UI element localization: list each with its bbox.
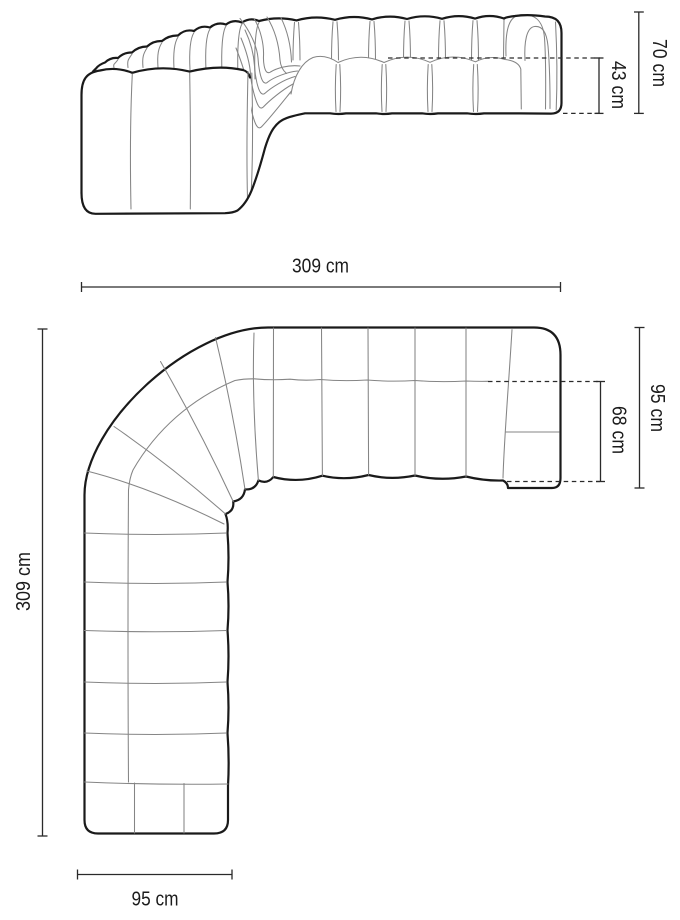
- svg-text:309 cm: 309 cm: [12, 552, 35, 611]
- svg-text:309 cm: 309 cm: [292, 255, 349, 278]
- svg-text:70 cm: 70 cm: [648, 39, 671, 87]
- svg-text:95 cm: 95 cm: [646, 384, 669, 432]
- svg-text:68 cm: 68 cm: [608, 406, 631, 454]
- svg-text:95 cm: 95 cm: [132, 888, 179, 911]
- svg-text:43 cm: 43 cm: [607, 61, 630, 109]
